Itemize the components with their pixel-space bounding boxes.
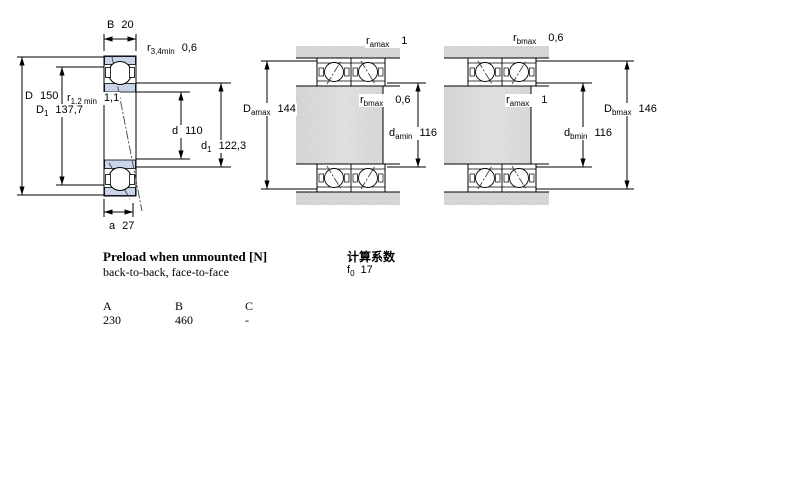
dim-label-rbmax-middle: rbmax0,6	[359, 94, 412, 107]
dim-label-B: B20	[106, 19, 135, 32]
dim-label-r34: r3,4min0,6	[146, 42, 198, 55]
preload-table-value-c: -	[245, 313, 249, 328]
preload-table-header-c: C	[245, 299, 253, 314]
preload-table-value-a: 230	[103, 313, 121, 328]
dim-label-d: d110	[171, 125, 204, 138]
calculation-factor-title: 计算系数	[347, 248, 395, 265]
dim-label-rbmax-right: rbmax0,6	[512, 32, 565, 45]
dim-label-a: a27	[108, 220, 135, 233]
preload-subtitle: back-to-back, face-to-face	[103, 265, 229, 280]
dim-label-D1: D1137,7	[35, 104, 84, 117]
dim-label-d1: d1122,3	[200, 140, 247, 153]
preload-table-value-b: 460	[175, 313, 193, 328]
dim-label-D: D150	[24, 90, 59, 103]
f0-factor: f017	[347, 264, 373, 276]
preload-table-header-a: A	[103, 299, 112, 314]
dim-label-ramax-middle: ramax1	[365, 35, 408, 48]
bearing-datasheet-figure: { "colors": { "bearing_section_fill": "#…	[0, 0, 800, 500]
dim-label-damin: damin116	[388, 127, 438, 140]
preload-title: Preload when unmounted [N]	[103, 249, 267, 265]
preload-table-header-b: B	[175, 299, 183, 314]
arrangement-right	[444, 46, 634, 205]
dim-label-Dbmax: Dbmax146	[603, 103, 658, 116]
dim-label-dbmin: dbmin116	[563, 127, 613, 140]
dim-label-Damax: Damax144	[242, 103, 297, 116]
dim-label-ramax-right: ramax1	[505, 94, 548, 107]
arrangement-middle	[261, 46, 426, 205]
